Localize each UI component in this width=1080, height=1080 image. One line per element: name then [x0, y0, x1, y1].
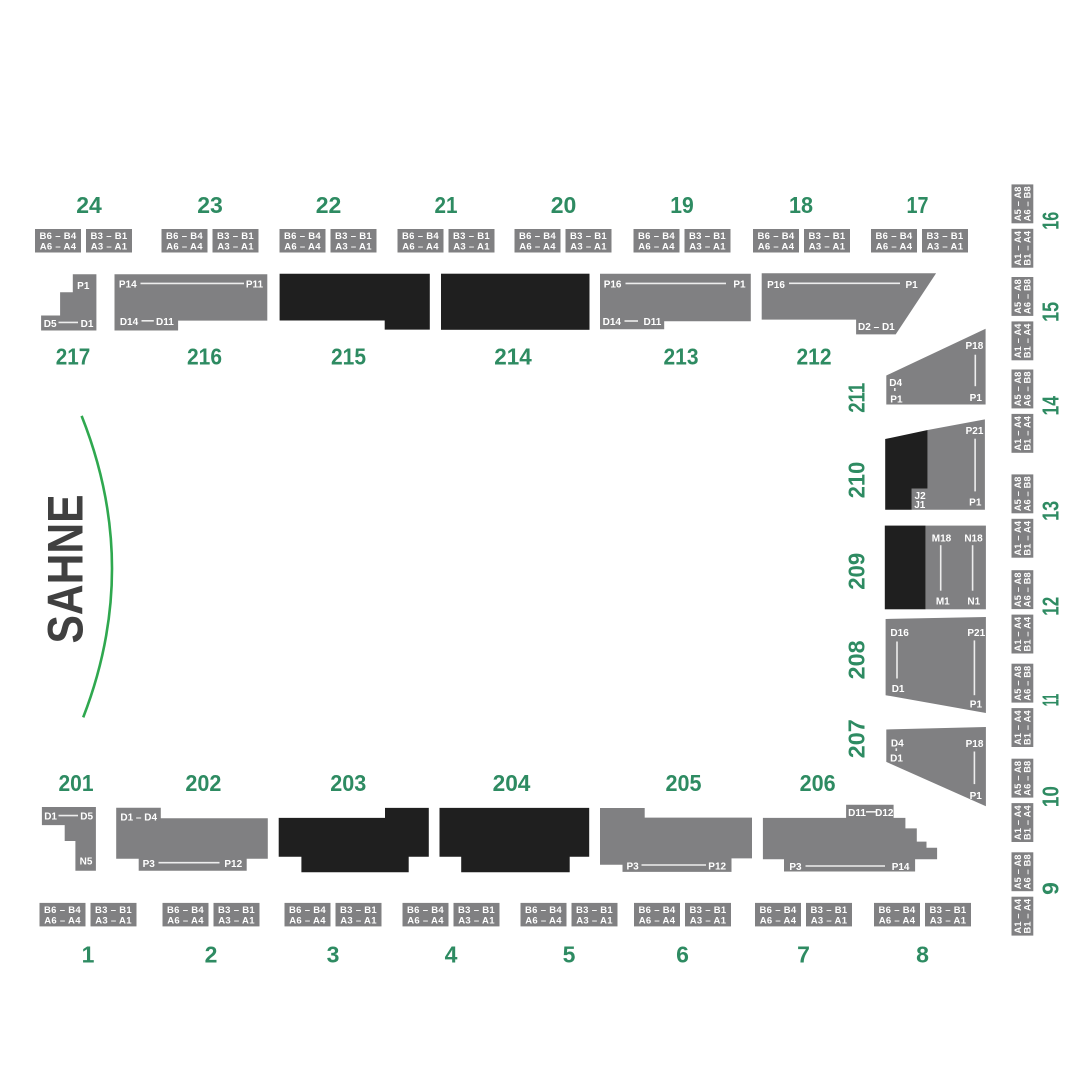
svg-text:P3: P3 [143, 859, 156, 870]
svg-text:P12: P12 [224, 859, 242, 870]
svg-text:15: 15 [1038, 302, 1064, 322]
svg-text:B6 – B4: B6 – B4 [639, 905, 676, 916]
svg-text:A3 – A1: A3 – A1 [927, 242, 964, 253]
svg-text:A6 – A4: A6 – A4 [284, 242, 321, 253]
svg-text:P3: P3 [789, 862, 802, 873]
svg-text:1: 1 [82, 942, 95, 968]
svg-text:B3 – B1: B3 – B1 [570, 231, 607, 242]
svg-text:A6 – A4: A6 – A4 [402, 242, 439, 253]
svg-text:P16: P16 [767, 280, 785, 291]
svg-text:212: 212 [797, 344, 832, 370]
svg-text:7: 7 [797, 942, 810, 968]
svg-text:M18: M18 [932, 534, 952, 545]
svg-text:N18: N18 [964, 534, 983, 545]
svg-text:B3 – B1: B3 – B1 [458, 905, 495, 916]
svg-text:D12: D12 [875, 808, 894, 819]
svg-text:D1 – D4: D1 – D4 [120, 813, 157, 824]
svg-text:202: 202 [185, 770, 221, 796]
svg-text:19: 19 [670, 192, 694, 218]
svg-text:A6 – A4: A6 – A4 [760, 916, 797, 927]
svg-text:A3 – A1: A3 – A1 [95, 916, 132, 927]
svg-text:P16: P16 [604, 280, 622, 291]
svg-text:11: 11 [1038, 694, 1064, 707]
svg-text:D1: D1 [44, 812, 57, 823]
svg-text:B1 – A4: B1 – A4 [1022, 230, 1032, 265]
svg-text:A6 – B8: A6 – B8 [1022, 279, 1032, 314]
svg-text:B3 – B1: B3 – B1 [218, 905, 255, 916]
svg-text:A6 – B8: A6 – B8 [1022, 476, 1032, 511]
svg-text:A6 – B8: A6 – B8 [1022, 854, 1032, 889]
svg-text:3: 3 [327, 942, 340, 968]
svg-text:D11: D11 [848, 808, 866, 819]
svg-text:213: 213 [664, 344, 699, 370]
svg-text:D1: D1 [81, 319, 94, 330]
svg-text:21: 21 [435, 192, 458, 218]
svg-text:B6 – B4: B6 – B4 [760, 905, 797, 916]
svg-text:A6 – B8: A6 – B8 [1022, 572, 1032, 607]
svg-text:A3 – A1: A3 – A1 [570, 242, 607, 253]
svg-text:204: 204 [493, 770, 531, 796]
svg-text:B1 – A4: B1 – A4 [1022, 415, 1032, 450]
svg-text:B6 – B4: B6 – B4 [876, 231, 913, 242]
svg-text:B3 – B1: B3 – B1 [217, 231, 254, 242]
svg-text:B6 – B4: B6 – B4 [758, 231, 795, 242]
svg-text:D11: D11 [156, 317, 174, 328]
svg-text:A6 – A4: A6 – A4 [758, 242, 795, 253]
svg-text:A6 – A4: A6 – A4 [407, 916, 444, 927]
svg-text:9: 9 [1038, 882, 1064, 895]
svg-text:A6 – A4: A6 – A4 [876, 242, 913, 253]
svg-text:A6 – A4: A6 – A4 [519, 242, 556, 253]
svg-text:201: 201 [59, 770, 94, 796]
svg-text:217: 217 [56, 344, 91, 370]
svg-text:B1 – A4: B1 – A4 [1022, 616, 1032, 651]
svg-text:12: 12 [1038, 597, 1064, 616]
svg-text:A3 – A1: A3 – A1 [458, 916, 495, 927]
svg-text:J1: J1 [914, 500, 926, 511]
svg-text:B3 – B1: B3 – B1 [91, 231, 128, 242]
svg-text:B3 – B1: B3 – B1 [576, 905, 613, 916]
svg-text:23: 23 [197, 192, 223, 218]
svg-text:P3: P3 [626, 862, 639, 873]
svg-text:A3 – A1: A3 – A1 [689, 242, 726, 253]
svg-text:B3 – B1: B3 – B1 [95, 905, 132, 916]
svg-text:10: 10 [1038, 786, 1064, 807]
svg-text:B1 – A4: B1 – A4 [1022, 805, 1032, 840]
svg-text:M1: M1 [936, 596, 950, 607]
svg-text:B3 – B1: B3 – B1 [453, 231, 490, 242]
svg-text:24: 24 [76, 192, 102, 218]
svg-text:P18: P18 [966, 739, 984, 750]
svg-text:P14: P14 [892, 862, 910, 873]
svg-text:B3 – B1: B3 – B1 [340, 905, 377, 916]
svg-text:B3 – B1: B3 – B1 [689, 231, 726, 242]
svg-text:B3 – B1: B3 – B1 [927, 231, 964, 242]
svg-text:B3 – B1: B3 – B1 [335, 231, 372, 242]
svg-text:B6 – B4: B6 – B4 [40, 231, 77, 242]
svg-text:P1: P1 [890, 394, 903, 405]
svg-text:A3 – A1: A3 – A1 [576, 916, 613, 927]
svg-text:D14: D14 [603, 317, 622, 328]
svg-text:A6 – B8: A6 – B8 [1022, 371, 1032, 406]
svg-text:B6 – B4: B6 – B4 [284, 231, 321, 242]
svg-text:A3 – A1: A3 – A1 [217, 242, 254, 253]
svg-text:A3 – A1: A3 – A1 [91, 242, 128, 253]
svg-text:A6 – A4: A6 – A4 [639, 916, 676, 927]
svg-text:22: 22 [316, 192, 342, 218]
svg-text:8: 8 [916, 942, 929, 968]
svg-text:D11: D11 [644, 317, 662, 328]
svg-text:216: 216 [187, 344, 222, 370]
svg-text:13: 13 [1038, 501, 1064, 521]
svg-text:207: 207 [843, 719, 869, 758]
svg-text:P1: P1 [970, 393, 983, 404]
svg-text:P12: P12 [708, 862, 726, 873]
svg-text:A3 – A1: A3 – A1 [453, 242, 490, 253]
svg-text:SAHNE: SAHNE [38, 495, 94, 644]
svg-text:B6 – B4: B6 – B4 [167, 905, 204, 916]
svg-text:206: 206 [800, 770, 836, 796]
svg-text:14: 14 [1038, 396, 1064, 416]
svg-text:P21: P21 [966, 426, 984, 437]
svg-text:B1 – A4: B1 – A4 [1022, 520, 1032, 555]
svg-text:B6 – B4: B6 – B4 [44, 905, 81, 916]
svg-text:214: 214 [494, 344, 532, 370]
svg-text:B6 – B4: B6 – B4 [638, 231, 675, 242]
svg-text:6: 6 [676, 942, 689, 968]
svg-text:D2 – D1: D2 – D1 [858, 322, 895, 333]
svg-text:A6 – A4: A6 – A4 [44, 916, 81, 927]
svg-text:P1: P1 [905, 280, 918, 291]
svg-text:209: 209 [843, 553, 869, 590]
svg-text:D4: D4 [891, 738, 904, 749]
svg-text:B1 – A4: B1 – A4 [1022, 323, 1032, 358]
svg-text:16: 16 [1038, 212, 1064, 230]
svg-text:P11: P11 [246, 280, 264, 291]
svg-text:A3 – A1: A3 – A1 [335, 242, 372, 253]
svg-text:A6 – B8: A6 – B8 [1022, 761, 1032, 796]
svg-text:208: 208 [843, 640, 869, 679]
svg-text:P18: P18 [966, 341, 984, 352]
svg-text:B6 – B4: B6 – B4 [879, 905, 916, 916]
svg-text:B6 – B4: B6 – B4 [525, 905, 562, 916]
svg-text:20: 20 [551, 192, 577, 218]
svg-text:B1 – A4: B1 – A4 [1022, 710, 1032, 745]
svg-text:D16: D16 [890, 628, 909, 639]
svg-text:P1: P1 [969, 497, 982, 508]
svg-text:P21: P21 [967, 628, 985, 639]
svg-text:P14: P14 [119, 280, 137, 291]
svg-text:B3 – B1: B3 – B1 [811, 905, 848, 916]
svg-text:A6 – A4: A6 – A4 [638, 242, 675, 253]
svg-text:P1: P1 [77, 281, 90, 292]
svg-text:210: 210 [843, 462, 869, 499]
svg-text:A3 – A1: A3 – A1 [809, 242, 846, 253]
svg-text:211: 211 [843, 383, 869, 413]
svg-text:2: 2 [205, 942, 218, 968]
svg-text:A3 – A1: A3 – A1 [811, 916, 848, 927]
svg-text:A3 – A1: A3 – A1 [690, 916, 727, 927]
svg-text:B1 – A4: B1 – A4 [1022, 898, 1032, 933]
svg-text:18: 18 [789, 192, 813, 218]
svg-text:5: 5 [563, 942, 576, 968]
svg-text:A3 – A1: A3 – A1 [930, 916, 967, 927]
svg-text:A6 – A4: A6 – A4 [525, 916, 562, 927]
svg-text:P1: P1 [733, 280, 746, 291]
svg-text:B6 – B4: B6 – B4 [519, 231, 556, 242]
svg-text:D1: D1 [892, 684, 905, 695]
svg-text:A6 – A4: A6 – A4 [289, 916, 326, 927]
svg-text:D5: D5 [80, 812, 93, 823]
svg-text:B3 – B1: B3 – B1 [930, 905, 967, 916]
svg-text:B6 – B4: B6 – B4 [402, 231, 439, 242]
svg-text:4: 4 [445, 942, 458, 968]
svg-text:17: 17 [907, 192, 929, 218]
svg-text:B6 – B4: B6 – B4 [407, 905, 444, 916]
svg-text:203: 203 [330, 770, 366, 796]
svg-text:N5: N5 [80, 856, 93, 867]
svg-text:B3 – B1: B3 – B1 [690, 905, 727, 916]
svg-text:215: 215 [331, 344, 366, 370]
svg-text:A3 – A1: A3 – A1 [218, 916, 255, 927]
svg-text:A6 – A4: A6 – A4 [166, 242, 203, 253]
svg-text:D1: D1 [890, 754, 903, 765]
svg-text:P1: P1 [970, 791, 983, 802]
svg-text:A6 – B8: A6 – B8 [1022, 186, 1032, 221]
svg-text:D4: D4 [889, 378, 902, 389]
svg-text:D5: D5 [44, 319, 57, 330]
svg-text:205: 205 [666, 770, 702, 796]
svg-text:D14: D14 [120, 317, 139, 328]
svg-text:A6 – A4: A6 – A4 [167, 916, 204, 927]
svg-text:A6 – A4: A6 – A4 [40, 242, 77, 253]
svg-text:A6 – B8: A6 – B8 [1022, 666, 1032, 701]
svg-text:B3 – B1: B3 – B1 [809, 231, 846, 242]
svg-text:A6 – A4: A6 – A4 [879, 916, 916, 927]
svg-text:N1: N1 [967, 596, 980, 607]
svg-text:A3 – A1: A3 – A1 [340, 916, 377, 927]
svg-text:B6 – B4: B6 – B4 [289, 905, 326, 916]
svg-text:B6 – B4: B6 – B4 [166, 231, 203, 242]
svg-text:P1: P1 [970, 699, 983, 710]
